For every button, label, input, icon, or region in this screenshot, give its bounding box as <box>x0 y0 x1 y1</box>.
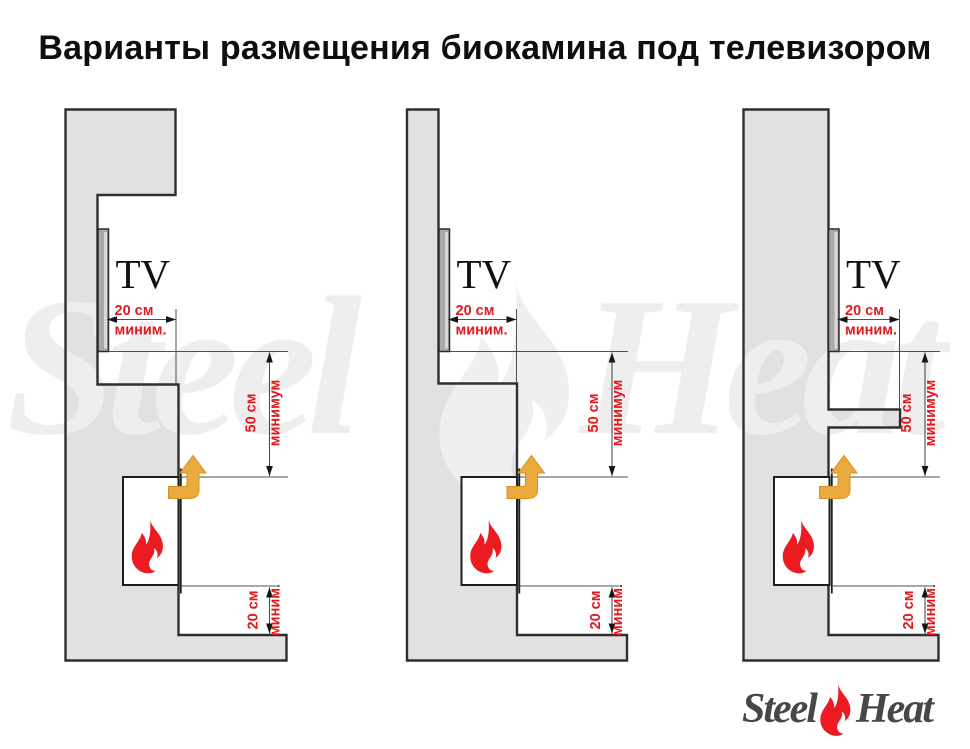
above-clearance-value: 50 см <box>586 394 602 433</box>
wall-structure-outline-variant-3 <box>744 110 939 661</box>
below-clearance-unit: миним. <box>610 584 626 636</box>
logo-flame-icon <box>817 684 855 736</box>
below-clearance-unit: миним. <box>268 584 284 636</box>
below-clearance-value: 20 см <box>246 591 262 630</box>
front-clearance-unit: миним. <box>456 323 508 339</box>
dimension-arrowhead <box>922 466 929 476</box>
above-clearance-unit: минимум <box>610 380 626 446</box>
front-clearance-value: 20 см <box>845 303 884 319</box>
below-clearance-unit: миним. <box>923 584 939 636</box>
front-clearance-unit: миним. <box>115 323 167 339</box>
placement-diagram-variant-3: TV20 смминим.50 смминимум20 смминим. <box>744 110 941 661</box>
tv-panel-front-highlight <box>835 232 838 349</box>
tv-label: TV <box>116 251 171 297</box>
dimension-arrowhead <box>922 353 929 363</box>
front-clearance-value: 20 см <box>115 303 154 319</box>
above-clearance-unit: минимум <box>268 380 284 446</box>
above-clearance-value: 50 см <box>899 394 915 433</box>
dimension-arrowhead <box>266 353 273 363</box>
logo-word-heat: Heat <box>856 688 932 736</box>
tv-panel-front-highlight <box>104 232 107 349</box>
tv-label: TV <box>457 251 512 297</box>
dimension-arrowhead <box>609 466 616 476</box>
dimension-arrowhead <box>507 316 517 323</box>
below-clearance-value: 20 см <box>901 591 917 630</box>
front-clearance-unit: миним. <box>845 323 897 339</box>
dimension-arrowhead <box>266 466 273 476</box>
diagram-annotations-layer: TV20 смминим.50 смминимум20 смминим.TV20… <box>0 0 970 749</box>
dimension-arrowhead <box>166 316 176 323</box>
page-title: Варианты размещения биокамина под телеви… <box>0 29 970 68</box>
above-clearance-unit: минимум <box>923 380 939 446</box>
infographic-canvas: { "title": "Варианты размещения биокамин… <box>0 0 970 749</box>
dimension-arrowhead <box>609 353 616 363</box>
above-clearance-value: 50 см <box>244 394 260 433</box>
front-clearance-value: 20 см <box>456 303 495 319</box>
placement-diagram-variant-2: TV20 смминим.50 смминимум20 смминим. <box>407 110 628 661</box>
below-clearance-value: 20 см <box>588 591 604 630</box>
tv-panel-front-highlight <box>445 232 448 349</box>
tv-label: TV <box>846 251 901 297</box>
brand-logo: Steel Heat <box>742 684 932 736</box>
placement-diagram-variant-1: TV20 смминим.50 смминимум20 смминим. <box>66 110 289 661</box>
logo-word-steel: Steel <box>742 688 816 736</box>
